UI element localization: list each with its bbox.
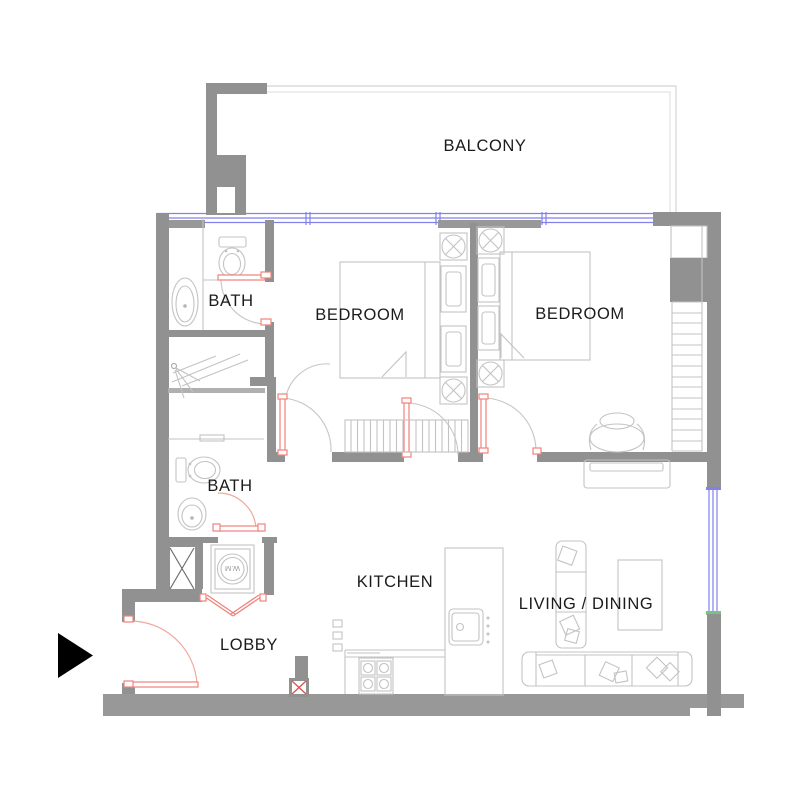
wm-label: W.M <box>225 564 240 573</box>
label-kitchen: KITCHEN <box>357 573 434 591</box>
nightstand <box>478 258 499 350</box>
wall-between-bedrooms <box>470 223 478 462</box>
floor-plan-canvas: W.M <box>0 0 800 800</box>
wall-bath1-bottom <box>156 330 274 337</box>
bedroom-right-furniture <box>477 226 708 452</box>
switch-squares <box>333 620 342 651</box>
living-dining-furniture <box>522 460 692 686</box>
wall-bath-column <box>250 220 276 456</box>
wall-shaft-divider <box>195 543 203 589</box>
desk-chair-icon <box>589 413 644 452</box>
wall-bottom-exterior <box>103 694 744 716</box>
shower-icon <box>168 364 264 442</box>
ceiling-light-icon <box>440 233 467 260</box>
label-bedroom-right: BEDROOM <box>535 305 624 323</box>
floor-plan-drawing: W.M <box>0 0 800 800</box>
sink-icon <box>172 278 198 326</box>
wall-right-exterior <box>707 226 721 487</box>
ceiling-light-icon <box>477 360 504 387</box>
label-balcony: BALCONY <box>443 137 526 155</box>
washing-machine-icon: W.M <box>211 545 254 593</box>
kitchen-island <box>445 548 503 695</box>
label-living-dining: LIVING / DINING <box>519 595 654 613</box>
wm-closet-doors <box>200 594 266 616</box>
label-bedroom-left: BEDROOM <box>315 306 404 324</box>
wall-top-right-block <box>653 212 721 226</box>
sink-icon <box>178 498 206 530</box>
kitchen-shaft-x-icon <box>289 678 309 697</box>
wall-left-exterior <box>156 213 169 537</box>
stove-icon <box>359 658 393 694</box>
wall-kitchen-column <box>295 656 308 680</box>
nightstand <box>441 266 466 372</box>
shaft-x-icon <box>170 548 194 589</box>
wall-bath2-bottom <box>156 537 218 543</box>
wall-balcony-column <box>206 83 267 215</box>
sofa-long <box>522 652 692 686</box>
kitchen-fixtures <box>333 548 503 695</box>
wall-wm-right <box>264 543 274 595</box>
bedroom-left-door-2 <box>402 398 458 457</box>
label-lobby: LOBBY <box>220 636 278 654</box>
tv-console <box>584 460 670 488</box>
bedroom-left-door <box>278 394 331 455</box>
window-right <box>706 487 721 615</box>
ceiling-light-icon <box>440 377 467 404</box>
wall-entry-jog <box>122 589 202 602</box>
bath-lower-door <box>213 493 265 531</box>
ceiling-light-icon <box>477 227 504 254</box>
closet-shelf-column <box>670 226 708 451</box>
vestibule-door-arc <box>286 364 330 396</box>
walls <box>103 83 744 716</box>
kitchen-sink-icon <box>449 609 490 645</box>
label-bath-lower: BATH <box>207 477 252 495</box>
bath-upper-fixtures <box>172 218 265 330</box>
label-bath-upper: BATH <box>208 292 253 310</box>
entry-door <box>124 616 198 687</box>
entry-arrow-icon <box>58 633 93 678</box>
toilet-icon <box>219 237 246 278</box>
linen-room-lines <box>172 354 248 386</box>
bedroom-right-door <box>479 394 541 454</box>
